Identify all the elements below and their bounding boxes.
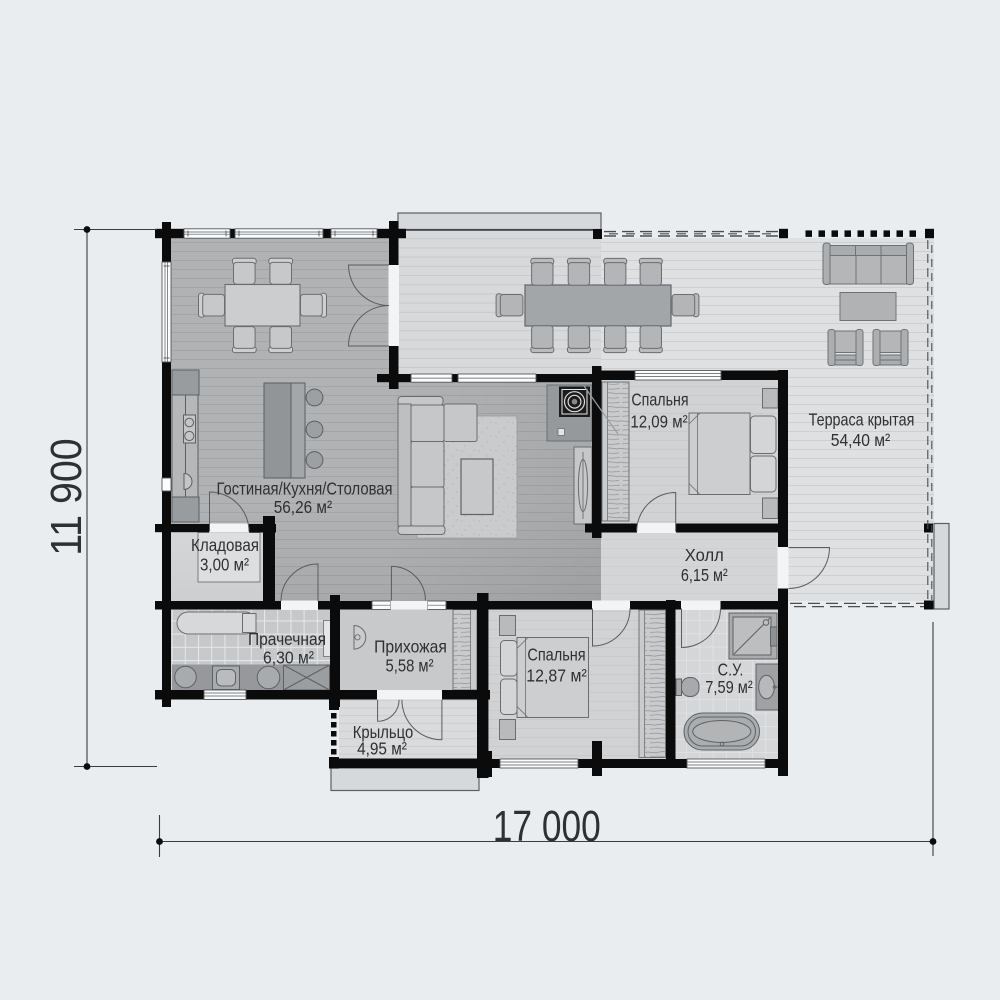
svg-text:Кладовая: Кладовая: [191, 535, 259, 555]
svg-text:12,87 м²: 12,87 м²: [526, 666, 587, 686]
svg-text:Прихожая: Прихожая: [374, 637, 447, 657]
svg-text:Спальня: Спальня: [631, 390, 688, 410]
svg-text:Спальня: Спальня: [527, 645, 585, 665]
svg-text:5,58 м²: 5,58 м²: [386, 656, 434, 676]
svg-text:11 900: 11 900: [42, 438, 91, 556]
svg-text:Прачечная: Прачечная: [248, 629, 326, 649]
svg-text:12,09 м²: 12,09 м²: [630, 412, 687, 432]
svg-text:7,59 м²: 7,59 м²: [705, 677, 753, 697]
svg-text:Терраса крытая: Терраса крытая: [809, 410, 915, 430]
svg-text:3,00 м²: 3,00 м²: [200, 555, 249, 575]
svg-text:6,15 м²: 6,15 м²: [681, 565, 728, 585]
svg-text:17 000: 17 000: [493, 802, 601, 851]
svg-text:Холл: Холл: [685, 545, 724, 565]
svg-text:4,95 м²: 4,95 м²: [357, 739, 407, 759]
svg-text:56,26 м²: 56,26 м²: [274, 497, 333, 517]
svg-text:54,40 м²: 54,40 м²: [831, 430, 891, 450]
svg-text:6,30 м²: 6,30 м²: [263, 648, 314, 668]
svg-text:Гостиная/Кухня/Столовая: Гостиная/Кухня/Столовая: [217, 479, 393, 499]
